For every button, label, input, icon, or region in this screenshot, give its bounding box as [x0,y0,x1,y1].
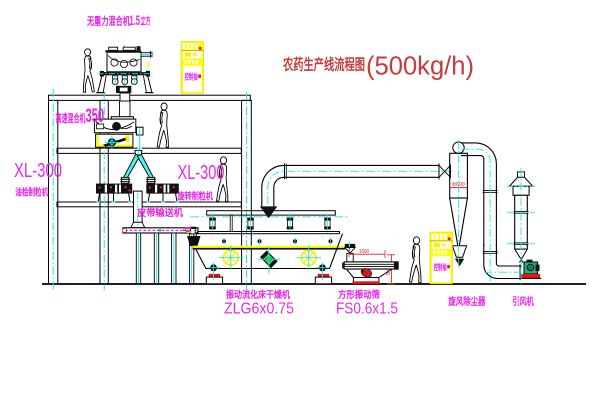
svg-text:(500kg/h): (500kg/h) [366,53,474,81]
svg-text:油桧制粒机: 油桧制粒机 [15,187,48,199]
svg-text:旋风除尘器: 旋风除尘器 [448,295,486,308]
svg-text:350: 350 [86,106,105,127]
svg-text:方形振动筛: 方形振动筛 [338,289,380,301]
svg-text:农药生产线流程图: 农药生产线流程图 [282,56,365,74]
svg-text:XL-300: XL-300 [14,160,62,182]
svg-text:XL-300: XL-300 [178,162,225,184]
svg-text:立方: 立方 [141,14,151,27]
svg-text:皮带输送机: 皮带输送机 [136,207,183,219]
svg-text:1500: 1500 [359,249,369,255]
svg-text:控制柚: 控制柚 [434,262,447,272]
svg-text:控制柚: 控制柚 [185,71,198,81]
svg-text:旋转制粒机: 旋转制粒机 [177,190,214,202]
svg-text:高速混合机: 高速混合机 [56,111,86,125]
svg-text:FS0.6x1.5: FS0.6x1.5 [336,301,398,318]
svg-text:1.5: 1.5 [130,13,141,28]
svg-text:振动流化床干燥机: 振动流化床干燥机 [226,289,290,301]
svg-text:无重力混合机: 无重力混合机 [86,14,130,27]
svg-text:ZLG6x0.75: ZLG6x0.75 [224,301,294,318]
svg-text:引风机: 引风机 [512,295,534,308]
